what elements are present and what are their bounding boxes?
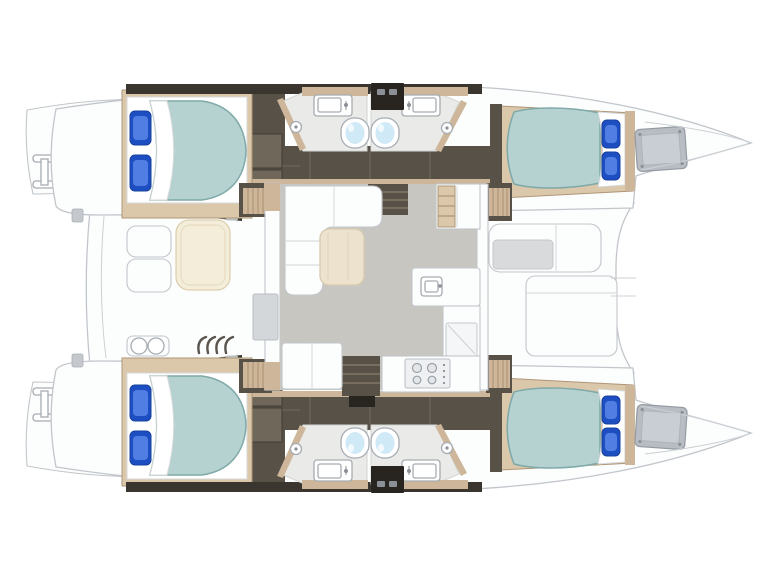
shower-head-icon <box>442 123 453 134</box>
nav-cabinet <box>436 184 480 229</box>
sink <box>314 95 352 116</box>
cockpit-sliding-door <box>253 294 278 340</box>
forepeak-hatch <box>635 126 688 171</box>
toilet <box>371 118 399 148</box>
sink <box>402 95 440 116</box>
aft-cabin <box>122 90 252 218</box>
bench-cushion <box>493 240 553 269</box>
coffee-table <box>320 229 364 285</box>
salon <box>253 183 488 407</box>
cockpit-bench <box>127 226 171 257</box>
catamaran-floor-plan <box>0 0 768 576</box>
cockpit-table <box>176 220 230 290</box>
double-bed-mattress <box>507 108 600 188</box>
foredeck-lounger <box>526 276 617 356</box>
toilet <box>341 118 369 148</box>
floor-plan-drawing <box>0 0 768 576</box>
aft-bulkhead <box>265 183 280 390</box>
transom-seat <box>127 336 169 356</box>
cockpit-bench <box>127 259 171 292</box>
galley-sink <box>421 277 442 296</box>
deck-fitting <box>72 209 83 222</box>
fridge <box>446 323 477 356</box>
shower-head-icon <box>291 122 302 133</box>
companionway-steps <box>371 83 404 110</box>
stove <box>405 359 450 388</box>
wardrobe <box>250 134 282 168</box>
deck-step-fwd <box>486 183 512 221</box>
